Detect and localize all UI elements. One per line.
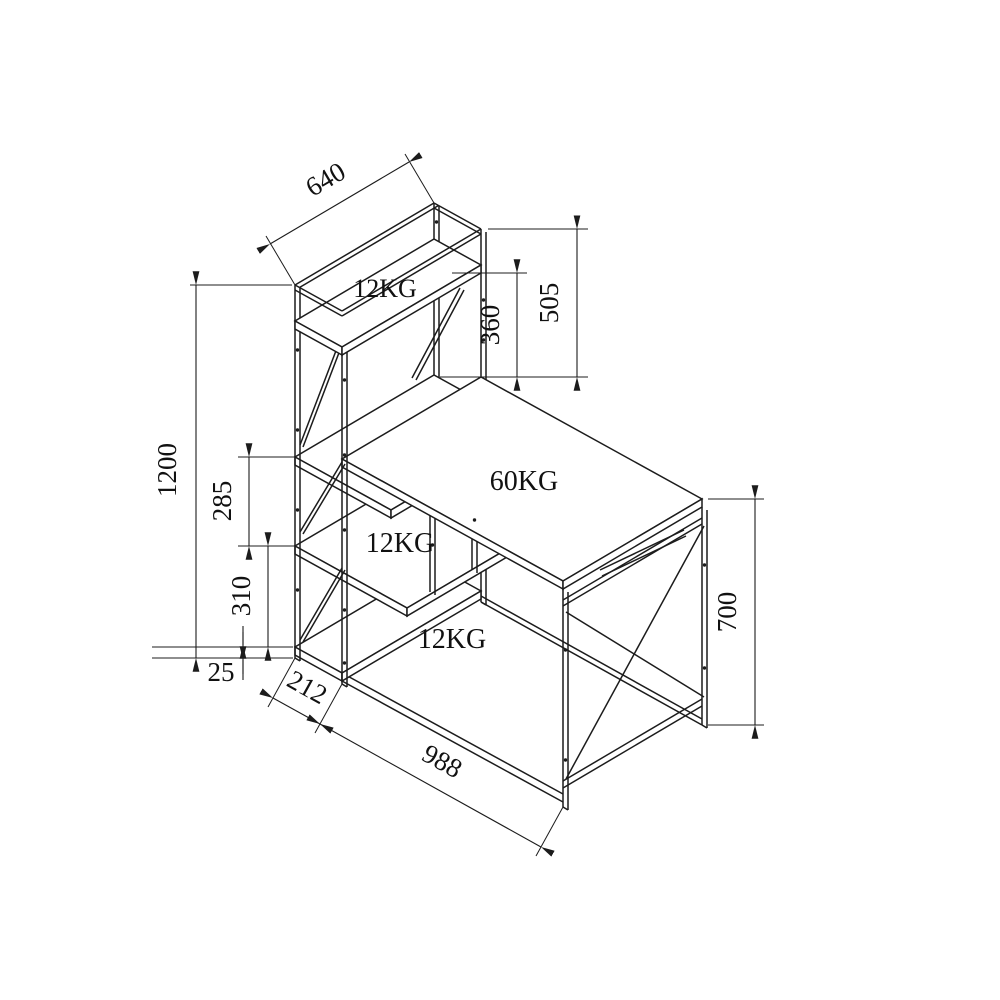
desk-technical-drawing: 640 1200 285 310 25 360 505 700 212 988 … bbox=[0, 0, 1000, 1000]
dim-hutch-height: 505 bbox=[534, 283, 564, 324]
dim-desk-leg-height: 700 bbox=[712, 592, 742, 633]
dim-lower-shelf-gap: 310 bbox=[226, 576, 256, 617]
load-middle-shelf: 12KG bbox=[366, 528, 434, 559]
load-bottom-shelf: 12KG bbox=[418, 624, 486, 655]
load-top-shelf: 12KG bbox=[353, 274, 417, 303]
dim-tower-height: 1200 bbox=[152, 443, 182, 497]
dim-upper-shelf-gap: 285 bbox=[207, 481, 237, 522]
dim-base-offset: 25 bbox=[208, 657, 235, 687]
drawing-sheet: 640 1200 285 310 25 360 505 700 212 988 … bbox=[0, 0, 1000, 1000]
dim-hutch-clearance: 360 bbox=[475, 305, 505, 346]
load-desktop: 60KG bbox=[490, 466, 558, 497]
dim-top-shelf-width: 640 bbox=[300, 156, 350, 202]
back-floor-stretcher bbox=[481, 596, 702, 725]
